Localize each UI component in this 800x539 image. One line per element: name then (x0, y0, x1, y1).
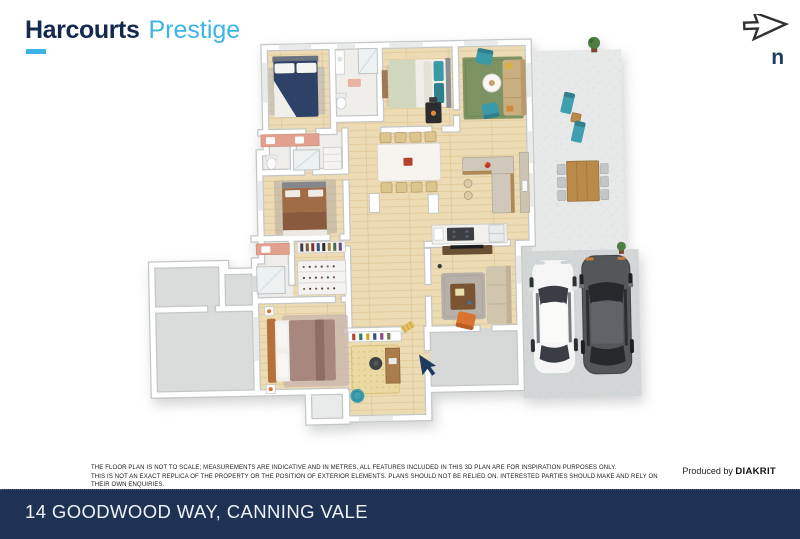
page: Harcourts Prestige n (0, 0, 800, 539)
bedroom-3 (274, 179, 337, 236)
toilet (337, 97, 346, 109)
bedroom-2 (381, 58, 451, 109)
ensuite (256, 243, 290, 294)
floorplan-3d-render (137, 18, 669, 460)
cooktop (447, 227, 474, 241)
bedroom-1 (268, 55, 325, 117)
entry-porch-floor (429, 328, 518, 388)
brand-name: Harcourts (25, 16, 140, 45)
patio-floor (528, 49, 625, 251)
north-arrow-glyph (742, 14, 786, 48)
tv (450, 245, 483, 249)
credit-producer: DIAKRIT (735, 466, 776, 477)
outdoor-dining (557, 161, 609, 202)
coffee-table (450, 283, 476, 310)
producer-credit: Produced by DIAKRIT (682, 466, 776, 477)
desk (385, 348, 400, 383)
white-car (529, 259, 579, 374)
living-room (462, 47, 526, 120)
disclaimer: THE FLOOR PLAN IS NOT TO SCALE; MEASUREM… (91, 464, 671, 490)
garage-wing (152, 263, 258, 395)
disclaimer-line-1: THE FLOOR PLAN IS NOT TO SCALE; MEASUREM… (91, 464, 671, 473)
wall-pier (428, 194, 438, 213)
credit-prefix: Produced by (682, 466, 735, 476)
outdoor-table (567, 161, 600, 202)
vanity-pink (256, 243, 289, 255)
wall-pier (369, 193, 379, 212)
north-label: n (771, 46, 784, 69)
toilet (267, 158, 276, 170)
north-arrow-icon: n (742, 14, 794, 80)
dark-car (579, 255, 635, 374)
disclaimer-line-2: THIS IS NOT AN EXACT REPLICA OF THE PROP… (91, 473, 671, 490)
walk-in-robe (297, 241, 346, 295)
property-address: 14 GOODWOOD WAY, CANNING VALE (25, 501, 368, 523)
address-bar: 14 GOODWOOD WAY, CANNING VALE (0, 489, 800, 539)
logo-underline (26, 49, 46, 54)
